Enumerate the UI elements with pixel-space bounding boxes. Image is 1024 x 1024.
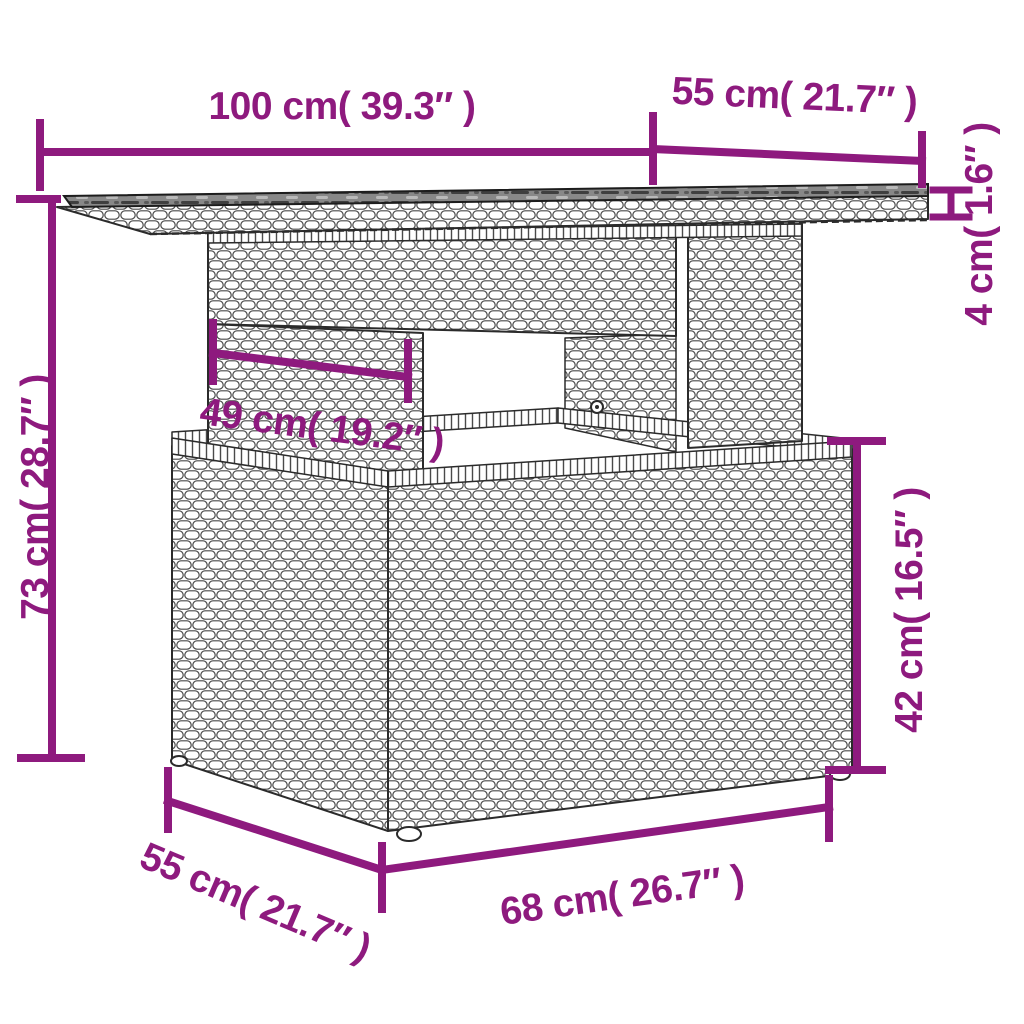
base-left-face (172, 446, 388, 831)
diagram-canvas: 100 cm( 39.3″ ) 55 cm( 21.7″ ) 4 cm( 1.6… (0, 0, 1024, 1024)
pedestal-opening (423, 332, 565, 420)
corner-fitting-dot (595, 405, 599, 409)
dimension-top-thickness: 4 cm( 1.6″ ) (933, 122, 1001, 325)
dimension-diagram: 100 cm( 39.3″ ) 55 cm( 21.7″ ) 4 cm( 1.6… (0, 0, 1024, 1024)
dimension-top-length: 100 cm( 39.3″ ) (40, 85, 653, 187)
dimension-label-base-height: 42 cm( 16.5″ ) (888, 487, 931, 733)
base-right-face (388, 449, 852, 831)
dimension-label-top-thickness: 4 cm( 1.6″ ) (958, 122, 1001, 325)
dimension-label-base-length: 68 cm( 26.7″ ) (497, 857, 746, 934)
dimension-total-height: 73 cm( 28.7″ ) (14, 199, 81, 758)
dimension-top-depth: 55 cm( 21.7″ ) (653, 70, 922, 184)
dimension-label-top-depth: 55 cm( 21.7″ ) (671, 70, 918, 124)
dimension-label-total-height: 73 cm( 28.7″ ) (14, 374, 57, 620)
table-drawing (57, 184, 928, 841)
table-foot (397, 827, 421, 841)
dimension-label-top-length: 100 cm( 39.3″ ) (208, 85, 475, 128)
table-foot (171, 756, 187, 766)
pedestal-right-column (688, 224, 802, 448)
